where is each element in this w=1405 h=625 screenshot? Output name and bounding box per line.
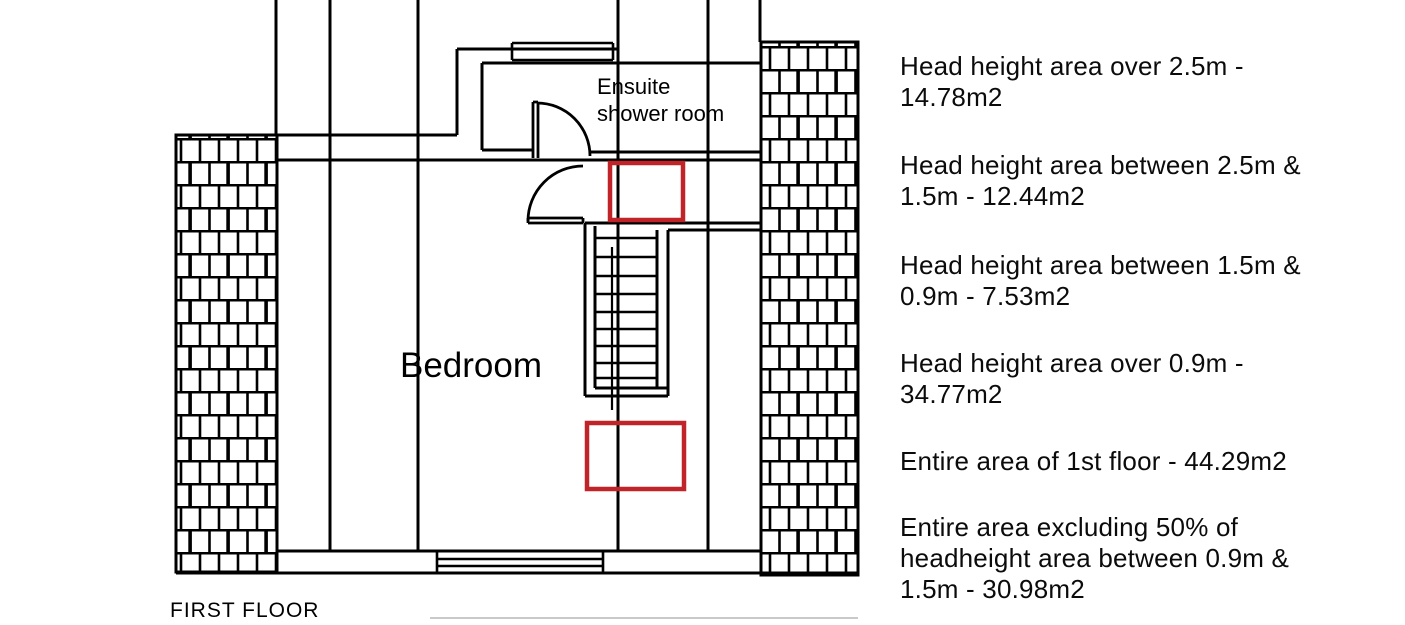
annotation-line: 34.77m2 [900,379,1380,410]
annotation-block-2: Head height area between 2.5m & 1.5m - 1… [900,150,1380,212]
area-annotations: Head height area over 2.5m - 14.78m2 Hea… [900,0,1380,620]
annotation-line: 1.5m - 12.44m2 [900,181,1380,212]
right-brick-wall [761,42,858,575]
landing-door-leaf [528,218,583,223]
annotation-line: 1.5m - 30.98m2 [900,574,1380,605]
annotation-line: Head height area between 1.5m & [900,250,1380,281]
ensuite-door-arc [537,103,590,156]
bedroom-label: Bedroom [400,346,542,385]
annotation-line: 14.78m2 [900,82,1380,113]
left-brick-wall [176,135,277,572]
ensuite-label-line1: Ensuite [597,74,670,99]
floor-title: FIRST FLOOR [170,599,319,620]
annotation-line: Entire area of 1st floor - 44.29m2 [900,446,1380,477]
annotation-line: 0.9m - 7.53m2 [900,281,1380,312]
annotation-block-5: Entire area of 1st floor - 44.29m2 [900,446,1380,477]
annotation-line: Head height area over 2.5m - [900,51,1380,82]
door-swings [528,102,590,223]
annotation-line: headheight area between 0.9m & [900,543,1380,574]
page-edge-artifact [430,617,858,619]
head-height-highlight-lower [587,423,684,489]
ensuite-label-line2: shower room [597,101,724,126]
annotation-line: Head height area over 0.9m - [900,348,1380,379]
window-symbols [437,43,613,573]
ensuite-door-leaf [533,102,538,158]
staircase [595,238,657,410]
annotation-line: Entire area excluding 50% of [900,512,1380,543]
annotation-line: Head height area between 2.5m & [900,150,1380,181]
annotation-block-1: Head height area over 2.5m - 14.78m2 [900,51,1380,113]
annotation-block-3: Head height area between 1.5m & 0.9m - 7… [900,250,1380,312]
annotation-block-6: Entire area excluding 50% of headheight … [900,512,1380,605]
floor-plan-page: Ensuite shower room Bedroom FIRST FLOOR … [0,0,1405,620]
floor-plan-drawing: Ensuite shower room Bedroom FIRST FLOOR [0,0,880,620]
head-height-highlight-upper [610,163,683,220]
annotation-block-4: Head height area over 0.9m - 34.77m2 [900,348,1380,410]
landing-door-arc [528,166,583,221]
